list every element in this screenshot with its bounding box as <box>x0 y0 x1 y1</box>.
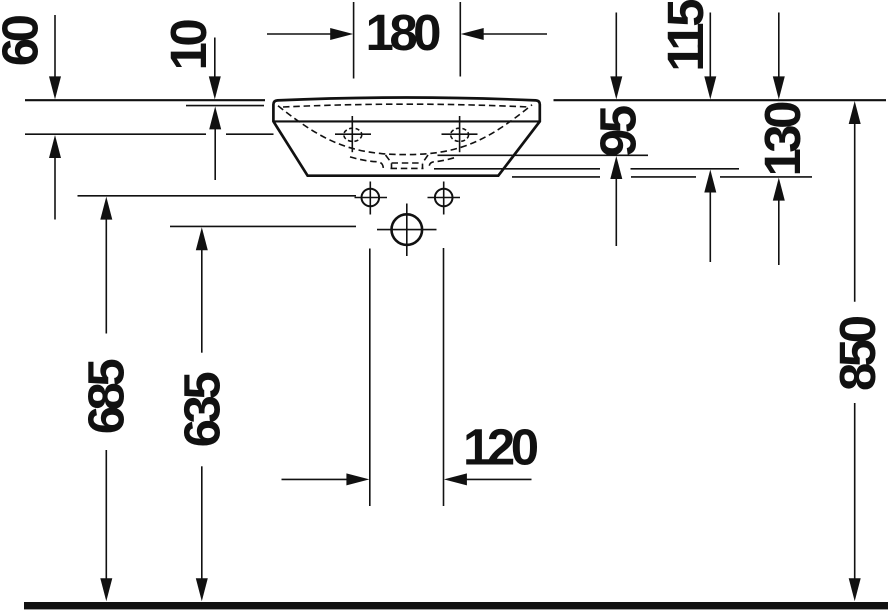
svg-text:115: 115 <box>657 0 714 72</box>
svg-text:685: 685 <box>78 360 135 435</box>
svg-text:130: 130 <box>754 102 811 177</box>
svg-text:635: 635 <box>173 373 230 448</box>
svg-text:10: 10 <box>160 20 217 71</box>
svg-text:850: 850 <box>829 316 886 391</box>
svg-text:120: 120 <box>463 419 538 476</box>
svg-text:180: 180 <box>365 4 440 61</box>
svg-text:60: 60 <box>0 15 48 66</box>
svg-text:95: 95 <box>590 106 647 157</box>
